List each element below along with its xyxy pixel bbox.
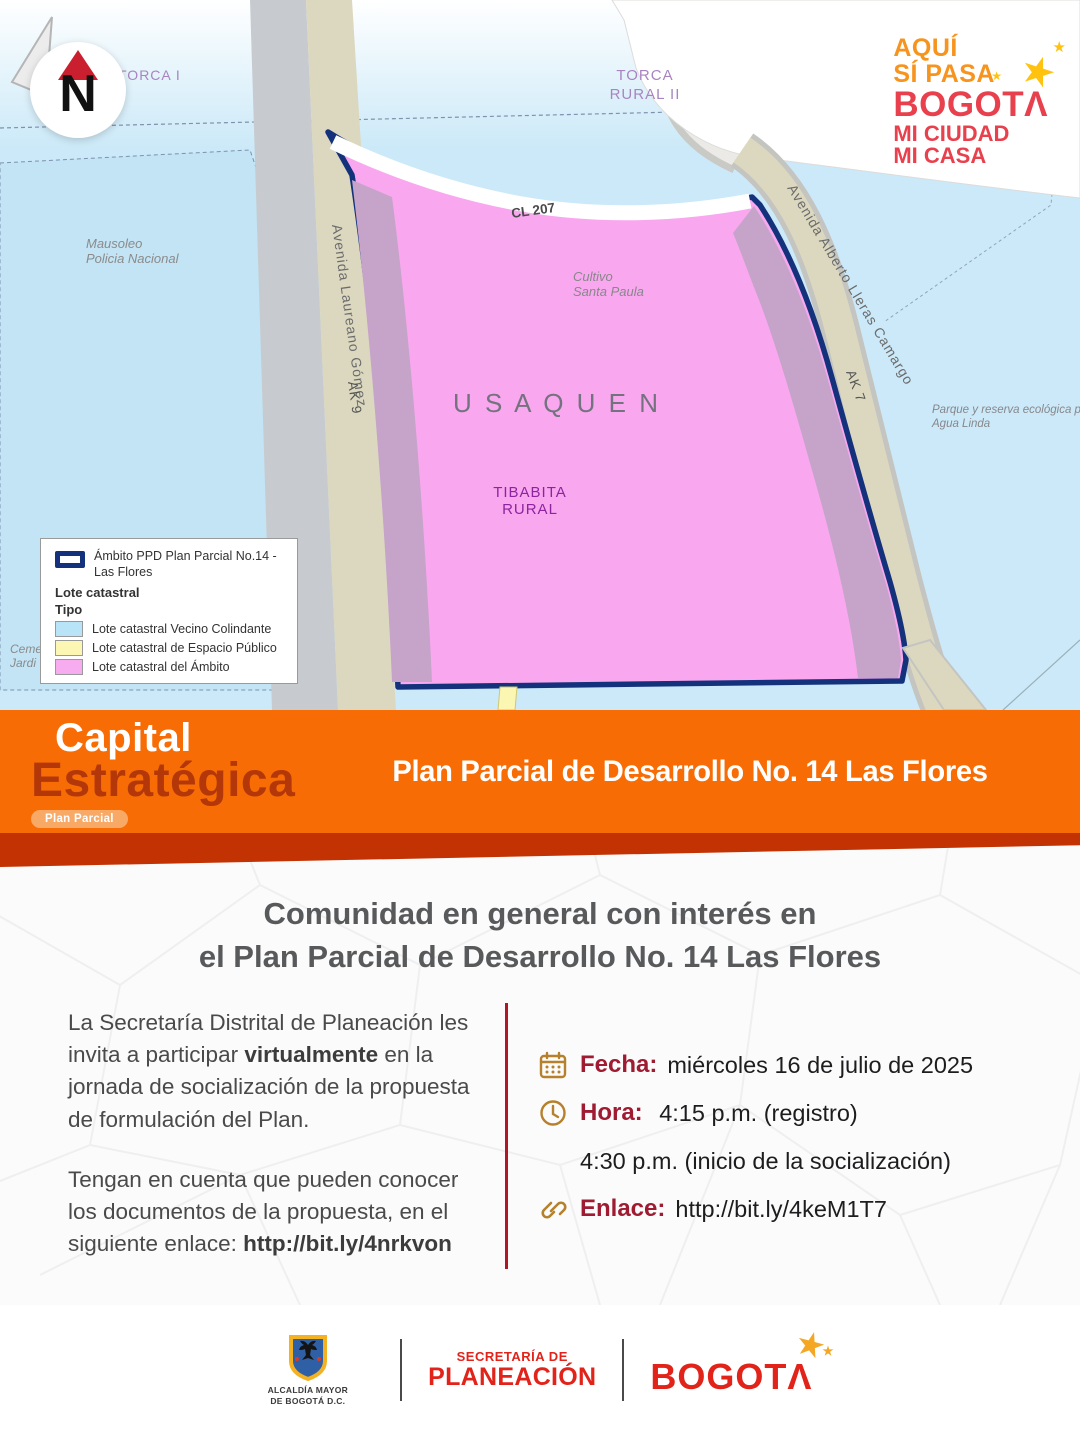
label-cementerio-2: Jardi bbox=[9, 656, 36, 670]
link-icon bbox=[538, 1194, 568, 1224]
clock-icon bbox=[538, 1098, 568, 1128]
label-torca-rural-2: RURAL II bbox=[610, 86, 681, 103]
label-tibabita-1: TIBABITA bbox=[493, 484, 567, 501]
label-tibabita-2: RURAL bbox=[502, 501, 558, 518]
meeting-link[interactable]: http://bit.ly/4keM1T7 bbox=[675, 1196, 887, 1223]
enlace-label: Enlace: bbox=[580, 1195, 665, 1223]
detail-row-hora-2: 4:30 p.m. (inicio de la socialización) bbox=[538, 1137, 1058, 1185]
map-section: TORCA I TORCA RURAL II Mausoleo Policia … bbox=[0, 0, 1080, 710]
label-cultivo-1: Cultivo bbox=[573, 269, 613, 284]
north-letter: N bbox=[30, 72, 126, 116]
hora-value: 4:15 p.m. (registro) bbox=[653, 1100, 858, 1127]
legend-ambito-label: Ámbito PPD Plan Parcial No.14 - Las Flor… bbox=[94, 549, 277, 580]
title-line-1: Comunidad en general con interés en bbox=[0, 893, 1080, 936]
secretaria-planeacion-logo: SECRETARÍA DE PLANEACIÓN bbox=[428, 1350, 596, 1390]
brand-line-micasa: MI CASA bbox=[893, 145, 1048, 167]
page-title: Comunidad en general con interés en el P… bbox=[0, 893, 1080, 979]
documents-link[interactable]: http://bit.ly/4nrkvon bbox=[243, 1228, 452, 1260]
legend-item-vecino: Lote catastral Vecino Colindante bbox=[55, 621, 287, 637]
legend-item-label: Lote catastral de Espacio Público bbox=[92, 641, 277, 655]
poster: TORCA I TORCA RURAL II Mausoleo Policia … bbox=[0, 0, 1080, 1430]
content-section: Comunidad en general con interés en el P… bbox=[0, 845, 1080, 1305]
alcaldia-caption: ALCALDÍA MAYOR DE BOGOTÁ D.C. bbox=[268, 1385, 349, 1407]
capital-estrategica-logo: Capital Estratégica Plan Parcial bbox=[55, 718, 295, 828]
blue-swatch bbox=[55, 621, 83, 637]
label-mausoleo-2: Policia Nacional bbox=[86, 251, 180, 266]
legend-tipo-header: Tipo bbox=[55, 602, 287, 617]
brand-badge: AQUÍ SÍ PASA BOGOTΛ MI CIUDAD MI CASA ★ … bbox=[893, 36, 1048, 168]
label-torca-rural-1: TORCA bbox=[616, 67, 673, 84]
brand-line-miciudad: MI CIUDAD bbox=[893, 123, 1048, 145]
label-cementerio-1: Ceme bbox=[10, 642, 42, 656]
hora-value-2: 4:30 p.m. (inicio de la socialización) bbox=[580, 1148, 951, 1175]
map-legend: Ámbito PPD Plan Parcial No.14 - Las Flor… bbox=[40, 538, 298, 684]
footer-divider bbox=[622, 1339, 624, 1401]
capital-text: Capital bbox=[55, 718, 295, 758]
yellow-strip bbox=[498, 687, 517, 710]
banner-title: Plan Parcial de Desarrollo No. 14 Las Fl… bbox=[351, 710, 1030, 833]
fecha-label: Fecha: bbox=[580, 1051, 657, 1079]
detail-row-fecha: Fecha: miércoles 16 de julio de 2025 bbox=[538, 1041, 1058, 1089]
secretaria-line-1: SECRETARÍA DE bbox=[428, 1350, 596, 1364]
label-torca-i: TORCA I bbox=[118, 67, 181, 83]
paragraph-2: Tengan en cuenta que pueden conocer los … bbox=[68, 1164, 486, 1261]
plan-parcial-pill: Plan Parcial bbox=[31, 810, 128, 828]
north-rose: N bbox=[30, 42, 126, 138]
hora-label: Hora: bbox=[580, 1099, 643, 1127]
paragraph-1: La Secretaría Distrital de Planeación le… bbox=[68, 1007, 486, 1136]
star-icon: ★ bbox=[991, 70, 1002, 82]
alcaldia-logo: ALCALDÍA MAYOR DE BOGOTÁ D.C. bbox=[268, 1333, 349, 1407]
fecha-value: miércoles 16 de julio de 2025 bbox=[667, 1052, 973, 1079]
icon-spacer bbox=[538, 1146, 568, 1176]
star-icon: ★ bbox=[1053, 40, 1066, 55]
yellow-swatch bbox=[55, 640, 83, 656]
detail-row-enlace: Enlace: http://bit.ly/4keM1T7 bbox=[538, 1185, 1058, 1233]
ambito-swatch bbox=[55, 551, 85, 568]
event-details: Fecha: miércoles 16 de julio de 2025 Hor… bbox=[538, 1041, 1058, 1233]
footer-divider bbox=[400, 1339, 402, 1401]
detail-row-hora: Hora: 4:15 p.m. (registro) bbox=[538, 1089, 1058, 1137]
virtualmente-bold: virtualmente bbox=[244, 1042, 378, 1067]
label-parque-1: Parque y reserva ecológica priva bbox=[932, 404, 1080, 416]
banner: Capital Estratégica Plan Parcial Plan Pa… bbox=[0, 710, 1080, 833]
estrategica-text: Estratégica bbox=[31, 758, 295, 804]
red-divider-line bbox=[505, 1003, 508, 1269]
invitation-paragraphs: La Secretaría Distrital de Planeación le… bbox=[68, 1007, 486, 1288]
bogota-logo: BOGOTΛ ★ ★ bbox=[650, 1342, 812, 1398]
pink-swatch bbox=[55, 659, 83, 675]
title-line-2: el Plan Parcial de Desarrollo No. 14 Las… bbox=[0, 936, 1080, 979]
legend-item-espacio: Lote catastral de Espacio Público bbox=[55, 640, 287, 656]
footer-logos: ALCALDÍA MAYOR DE BOGOTÁ D.C. SECRETARÍA… bbox=[0, 1333, 1080, 1407]
star-icon: ★ bbox=[823, 1344, 835, 1358]
bogota-coat-of-arms-icon bbox=[287, 1333, 329, 1381]
label-mausoleo-1: Mausoleo bbox=[86, 236, 142, 251]
footer: ALCALDÍA MAYOR DE BOGOTÁ D.C. SECRETARÍA… bbox=[0, 1305, 1080, 1430]
brand-line-bogota: BOGOTΛ bbox=[893, 87, 1048, 123]
legend-item-label: Lote catastral Vecino Colindante bbox=[92, 622, 271, 636]
legend-item-label: Lote catastral del Ámbito bbox=[92, 660, 230, 674]
legend-lote-header: Lote catastral bbox=[55, 585, 287, 600]
label-parque-2: Agua Linda bbox=[931, 418, 990, 430]
label-cultivo-2: Santa Paula bbox=[573, 284, 644, 299]
secretaria-line-2: PLANEACIÓN bbox=[428, 1364, 596, 1390]
label-usaquen: U S A Q U E N bbox=[453, 388, 661, 418]
legend-item-ambito: Lote catastral del Ámbito bbox=[55, 659, 287, 675]
calendar-icon bbox=[538, 1050, 568, 1080]
